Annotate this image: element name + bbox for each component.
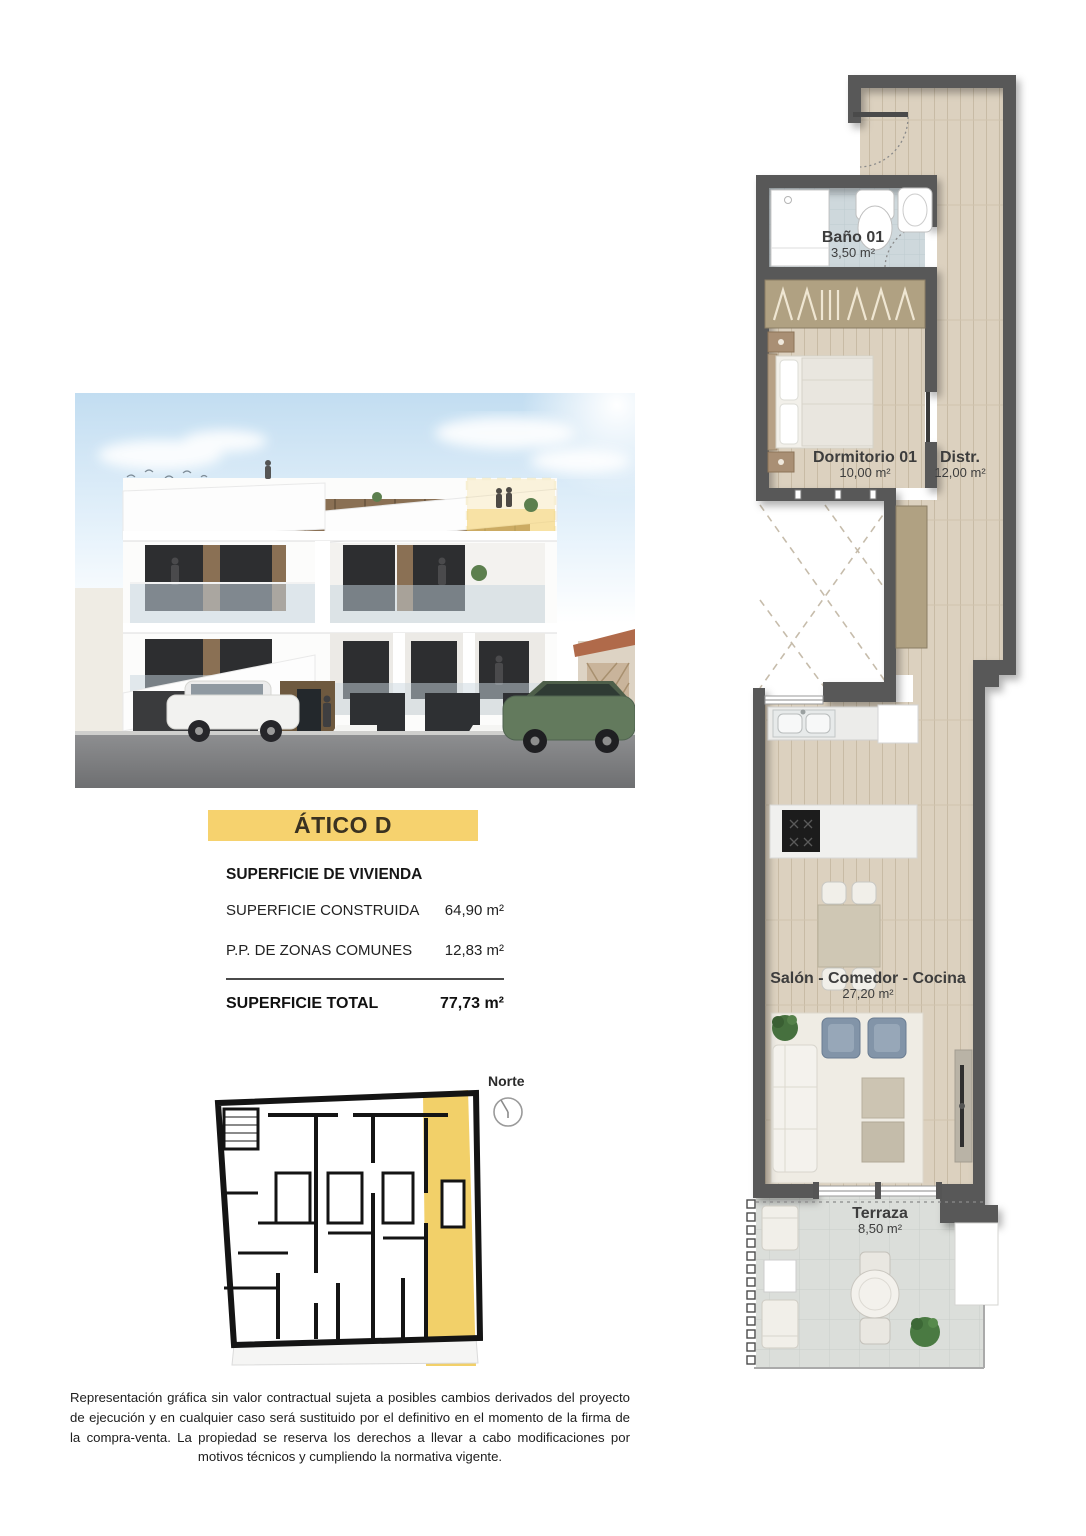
surface-row-value: 12,83 m² xyxy=(445,942,504,959)
room-label-dormitorio: Dormitorio 01 10,00 m² xyxy=(813,450,917,479)
room-name: Distr. xyxy=(934,450,985,466)
road xyxy=(75,735,635,788)
brochure-page: ÁTICO D SUPERFICIE DE VIVIENDA SUPERFICI… xyxy=(0,0,1086,1536)
person-terrace xyxy=(495,656,503,686)
north-label: Norte xyxy=(488,1073,548,1089)
unit-highlight-box xyxy=(467,479,555,539)
room-label-bano: Baño 01 3,50 m² xyxy=(822,230,884,259)
floor-plan xyxy=(740,60,1060,1375)
room-name: Terraza xyxy=(852,1206,908,1222)
surface-row-total: SUPERFICIE TOTAL 77,73 m² xyxy=(226,995,504,1013)
unit-title-banner: ÁTICO D xyxy=(208,810,478,841)
north-compass-icon xyxy=(488,1092,528,1132)
neighbour-wall-left xyxy=(75,588,125,738)
room-name: Dormitorio 01 xyxy=(813,450,917,466)
surface-row-comunes: P.P. DE ZONAS COMUNES 12,83 m² xyxy=(226,942,504,959)
person-balcony xyxy=(171,558,179,586)
room-area: 10,00 m² xyxy=(813,466,917,479)
lightwell-void xyxy=(760,505,890,688)
surface-table-divider xyxy=(226,978,504,980)
surface-row-label: P.P. DE ZONAS COMUNES xyxy=(226,942,412,959)
person-entrance xyxy=(323,696,331,728)
surface-row-label: SUPERFICIE CONSTRUIDA xyxy=(226,902,419,919)
room-name: Baño 01 xyxy=(822,230,884,246)
room-area: 3,50 m² xyxy=(822,246,884,259)
room-area: 12,00 m² xyxy=(934,466,985,479)
surface-table-header: SUPERFICIE DE VIVIENDA xyxy=(226,866,504,884)
wardrobe xyxy=(765,280,925,328)
room-label-distr: Distr. 12,00 m² xyxy=(934,450,985,479)
key-plan xyxy=(198,1073,483,1373)
room-label-salon: Salón - Comedor - Cocina 27,20 m² xyxy=(770,971,966,1000)
surface-row-construida: SUPERFICIE CONSTRUIDA 64,90 m² xyxy=(226,902,504,919)
surface-row-value: 64,90 m² xyxy=(445,902,504,919)
room-area: 27,20 m² xyxy=(770,987,966,1000)
surface-total-value: 77,73 m² xyxy=(440,995,504,1013)
unit-title: ÁTICO D xyxy=(294,812,392,839)
disclaimer-text: Representación gráfica sin valor contrac… xyxy=(70,1388,630,1467)
building-render-image xyxy=(75,393,635,788)
hall-closet xyxy=(896,506,927,648)
person-roof xyxy=(265,460,271,479)
bedroom-sliding-door xyxy=(926,392,930,442)
surface-total-label: SUPERFICIE TOTAL xyxy=(226,995,378,1013)
room-label-terraza: Terraza 8,50 m² xyxy=(852,1206,908,1235)
room-name: Salón - Comedor - Cocina xyxy=(770,971,966,987)
room-area: 8,50 m² xyxy=(852,1222,908,1235)
